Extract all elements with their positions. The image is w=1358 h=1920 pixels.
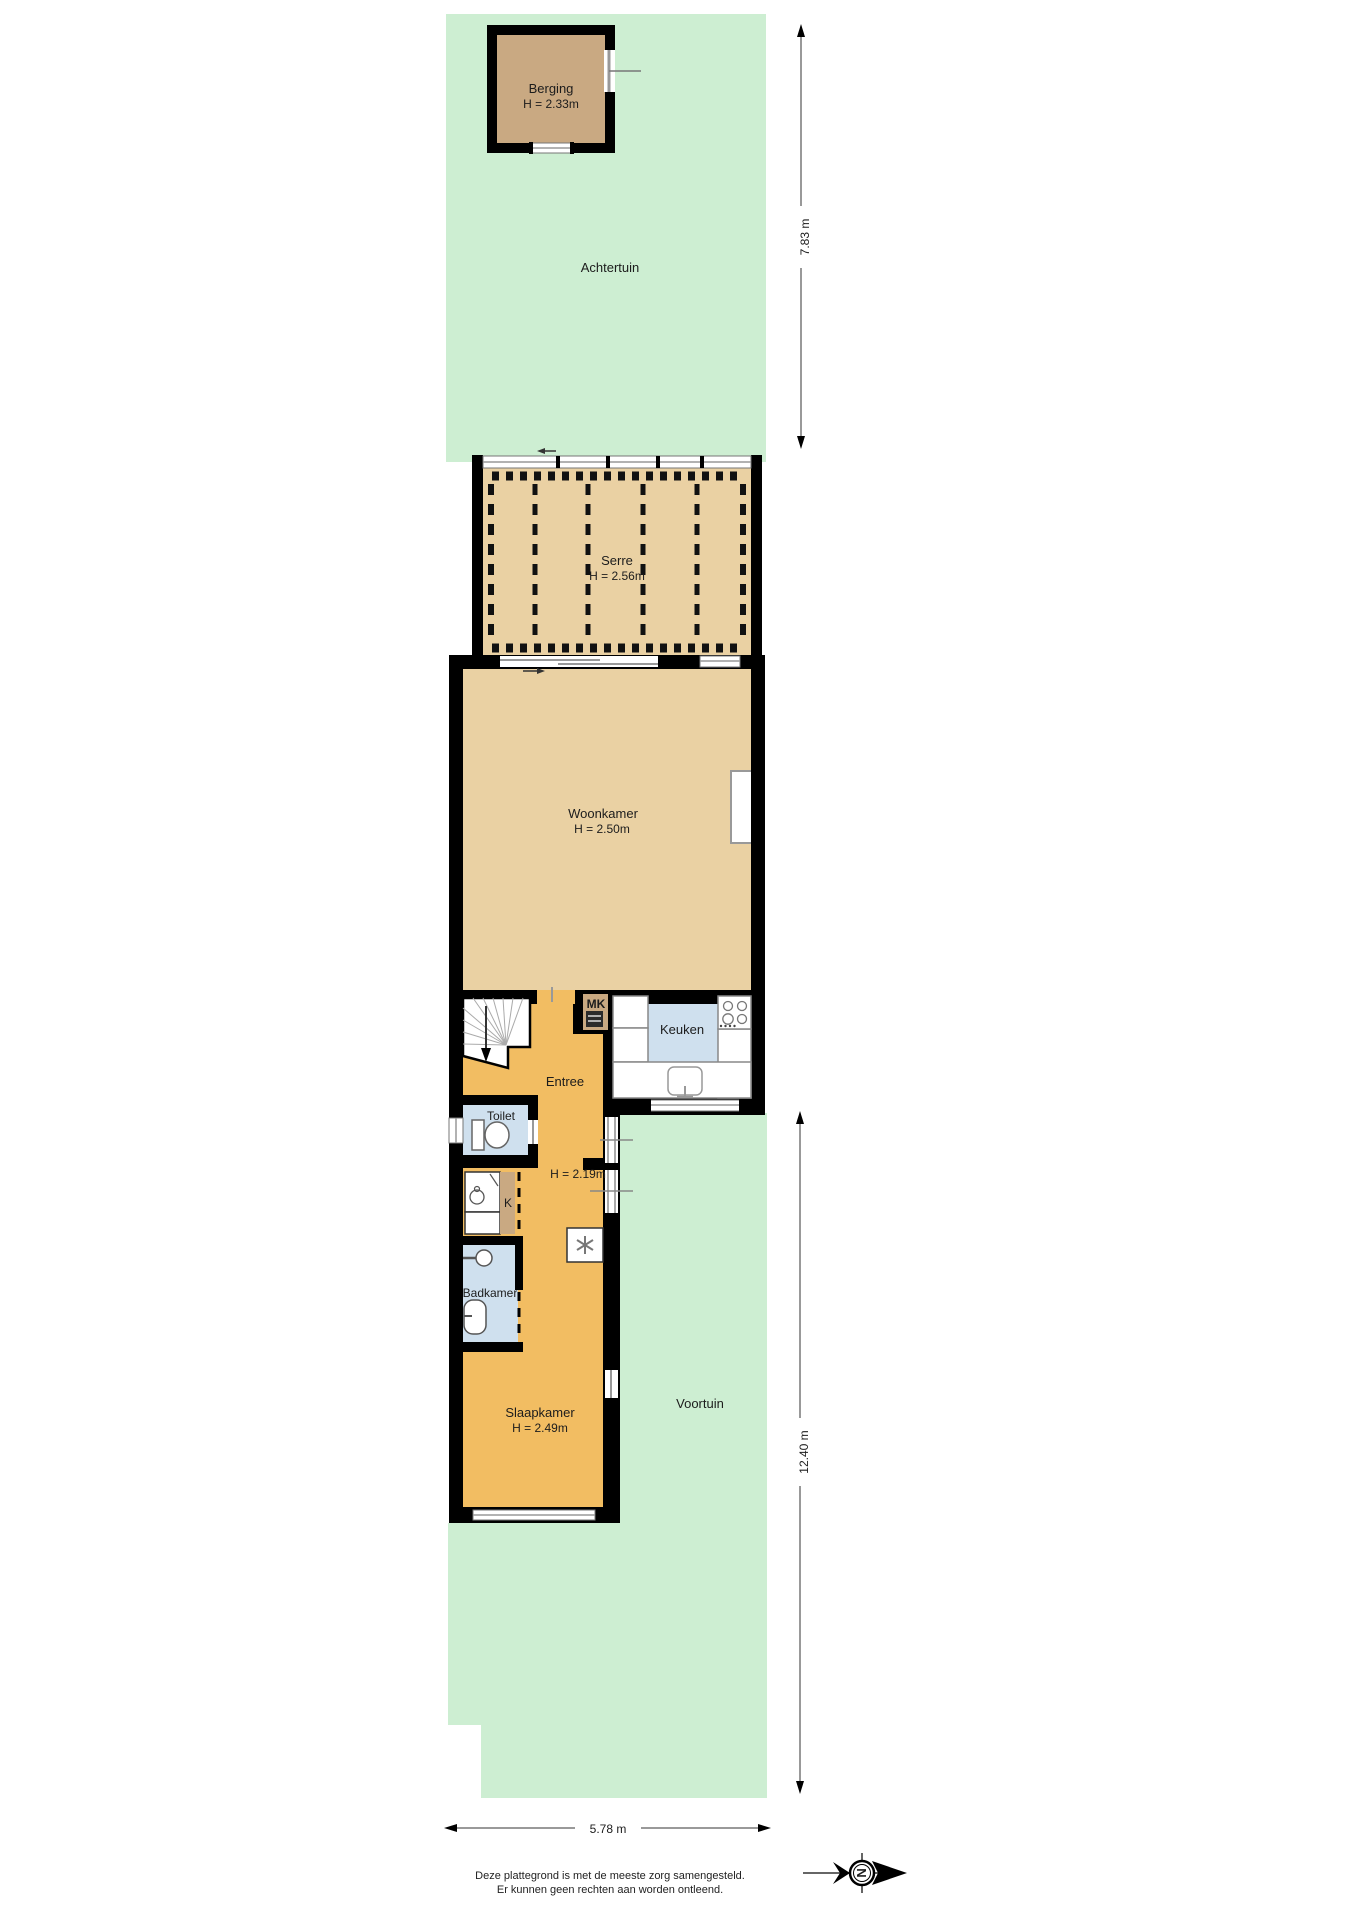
front-garden-depth-label: 12.40 m xyxy=(797,1430,811,1473)
meterkast-label: MK xyxy=(587,997,606,1011)
toilet-icon xyxy=(472,1120,509,1150)
plot-width-label: 5.78 m xyxy=(590,1822,627,1836)
toilet-door xyxy=(528,1120,538,1144)
keuken-window xyxy=(646,1099,744,1112)
berging-label: Berging xyxy=(529,81,574,96)
toilet-window xyxy=(449,1118,463,1143)
woonkamer-niche xyxy=(731,771,753,843)
hal-height: H = 2.19m xyxy=(550,1167,606,1181)
measurement-front-garden: 12.40 m xyxy=(792,1111,811,1794)
floorplan-drawing: 7.83 m 12.40 m 5.78 m Berging H = 2.33m … xyxy=(0,0,1358,1920)
serre-label: Serre xyxy=(601,553,633,568)
washbasin-icon xyxy=(464,1300,486,1334)
kast-label: K xyxy=(504,1196,512,1210)
woonkamer-label: Woonkamer xyxy=(568,806,639,821)
measurement-plot-width: 5.78 m xyxy=(444,1820,771,1836)
slaapkamer-side-window xyxy=(605,1370,618,1398)
meter-icon xyxy=(586,1011,603,1027)
berging-window xyxy=(529,142,574,154)
slaapkamer-height: H = 2.49m xyxy=(512,1421,568,1435)
compass-north-icon: N xyxy=(803,1853,907,1893)
badkamer-label: Badkamer xyxy=(463,1286,518,1300)
toilet-label: Toilet xyxy=(487,1109,516,1123)
sink-icon xyxy=(668,1067,702,1097)
measurement-back-garden: 7.83 m xyxy=(793,24,812,449)
serre-window-front xyxy=(483,456,751,468)
achtertuin-label: Achtertuin xyxy=(581,260,640,275)
voortuin-label: Voortuin xyxy=(676,1396,724,1411)
ventilation-unit-icon xyxy=(567,1228,603,1262)
floorplan-page: 7.83 m 12.40 m 5.78 m Berging H = 2.33m … xyxy=(0,0,1358,1920)
compass-letter: N xyxy=(854,1868,869,1877)
slaapkamer-label: Slaapkamer xyxy=(505,1405,575,1420)
berging-height: H = 2.33m xyxy=(523,97,579,111)
slaapkamer-window xyxy=(473,1510,595,1520)
woonkamer-height: H = 2.50m xyxy=(574,822,630,836)
disclaimer-line2: Er kunnen geen rechten aan worden ontlee… xyxy=(497,1884,723,1896)
entree-label: Entree xyxy=(546,1074,584,1089)
stove-icon xyxy=(718,996,751,1029)
woonkamer-window xyxy=(700,656,740,667)
serre-height: H = 2.56m xyxy=(589,569,645,583)
disclaimer-line1: Deze plattegrond is met de meeste zorg s… xyxy=(475,1870,745,1882)
keuken-label: Keuken xyxy=(660,1022,704,1037)
back-garden-depth-label: 7.83 m xyxy=(798,219,812,256)
